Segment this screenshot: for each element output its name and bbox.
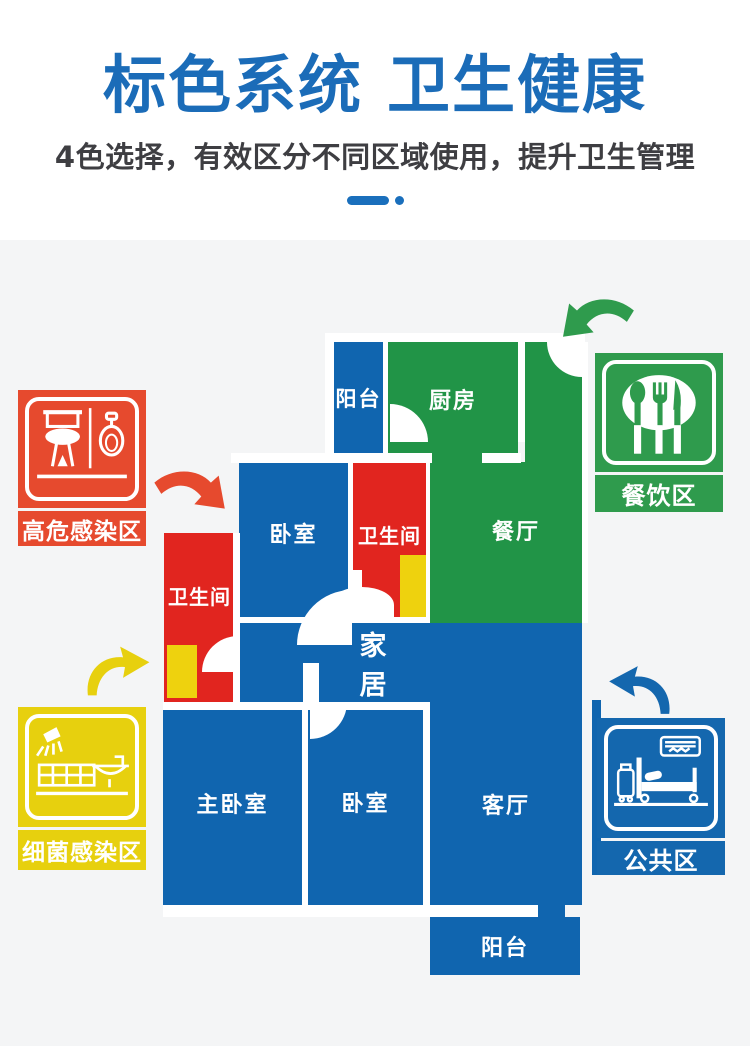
divider-dot-icon	[395, 196, 404, 205]
wall	[231, 453, 432, 463]
curved-arrow-public-icon	[592, 664, 674, 716]
room-label: 卧室	[341, 786, 389, 818]
wall	[518, 342, 525, 442]
room-label: 厨房	[429, 383, 477, 415]
legend-dining-badge: 餐饮区	[595, 353, 723, 512]
wall	[325, 333, 585, 342]
legend-dining-icon-tile	[595, 353, 723, 472]
room-balcony-bottom: 阳台	[430, 917, 580, 975]
page-subtitle: 4色选择，有效区分不同区域使用，提升卫生管理	[0, 134, 750, 176]
wall	[426, 462, 430, 623]
bed-luggage-icon	[610, 731, 712, 821]
wall	[423, 710, 430, 905]
room-master-bedroom: 主卧室	[163, 710, 302, 905]
room-label: 卫生间	[358, 520, 421, 549]
legend-high-risk-badge: 高危感染区	[18, 390, 146, 546]
kitchen-dining-opening	[432, 455, 482, 463]
wall	[163, 702, 430, 710]
room-bedroom-bottom: 卧室	[308, 710, 423, 905]
page-header: 标色系统 卫生健康 4色选择，有效区分不同区域使用，提升卫生管理	[0, 0, 750, 240]
room-label: 餐厅	[492, 514, 540, 546]
wall	[582, 342, 588, 623]
room-living: 客厅	[430, 623, 582, 905]
floorplan-section: 阳台 厨房 餐厅 卧室 卫生间 卫生间 家居 主卧室 卧室 客厅 阳台	[0, 240, 750, 1046]
title-divider	[0, 196, 750, 205]
legend-high-risk-icon-tile	[18, 390, 146, 508]
wall	[383, 342, 388, 453]
room-label: 主卧室	[196, 787, 268, 819]
curved-arrow-bacteria-icon	[83, 644, 167, 698]
bathroom-mat	[400, 555, 426, 617]
legend-bacteria-icon-tile	[18, 707, 146, 827]
curved-arrow-dining-icon	[552, 293, 644, 349]
legend-dining-label: 餐饮区	[595, 475, 723, 512]
toilet-urinal-icon	[31, 403, 133, 489]
room-balcony-top: 阳台	[334, 342, 383, 453]
shower-sink-icon	[31, 720, 133, 806]
legend-public-badge: 公共区	[597, 718, 725, 875]
legend-high-risk-label: 高危感染区	[18, 511, 146, 546]
room-bathroom-left: 卫生间	[164, 533, 235, 703]
legend-bacteria-badge: 细菌感染区	[18, 707, 146, 870]
wall	[302, 710, 308, 905]
legend-public-icon-tile	[597, 718, 725, 838]
legend-public-label: 公共区	[597, 841, 725, 875]
divider-bar	[347, 196, 389, 205]
room-label: 家居	[360, 624, 407, 702]
room-dining: 餐厅	[430, 462, 582, 623]
wall	[163, 905, 538, 917]
door-leaf	[352, 570, 362, 623]
room-label: 卧室	[269, 517, 317, 549]
room-label: 阳台	[336, 383, 382, 413]
legend-bacteria-label: 细菌感染区	[18, 830, 146, 870]
wall	[325, 333, 334, 457]
wall	[482, 453, 521, 463]
room-label: 客厅	[482, 788, 530, 820]
tableware-icon	[608, 366, 710, 460]
page-title: 标色系统 卫生健康	[0, 0, 750, 122]
living-balcony-opening	[538, 905, 565, 917]
room-label: 卫生间	[168, 581, 231, 610]
curved-arrow-high-risk-icon	[150, 462, 230, 524]
bathroom-mat	[167, 645, 197, 698]
room-label: 阳台	[481, 930, 529, 962]
